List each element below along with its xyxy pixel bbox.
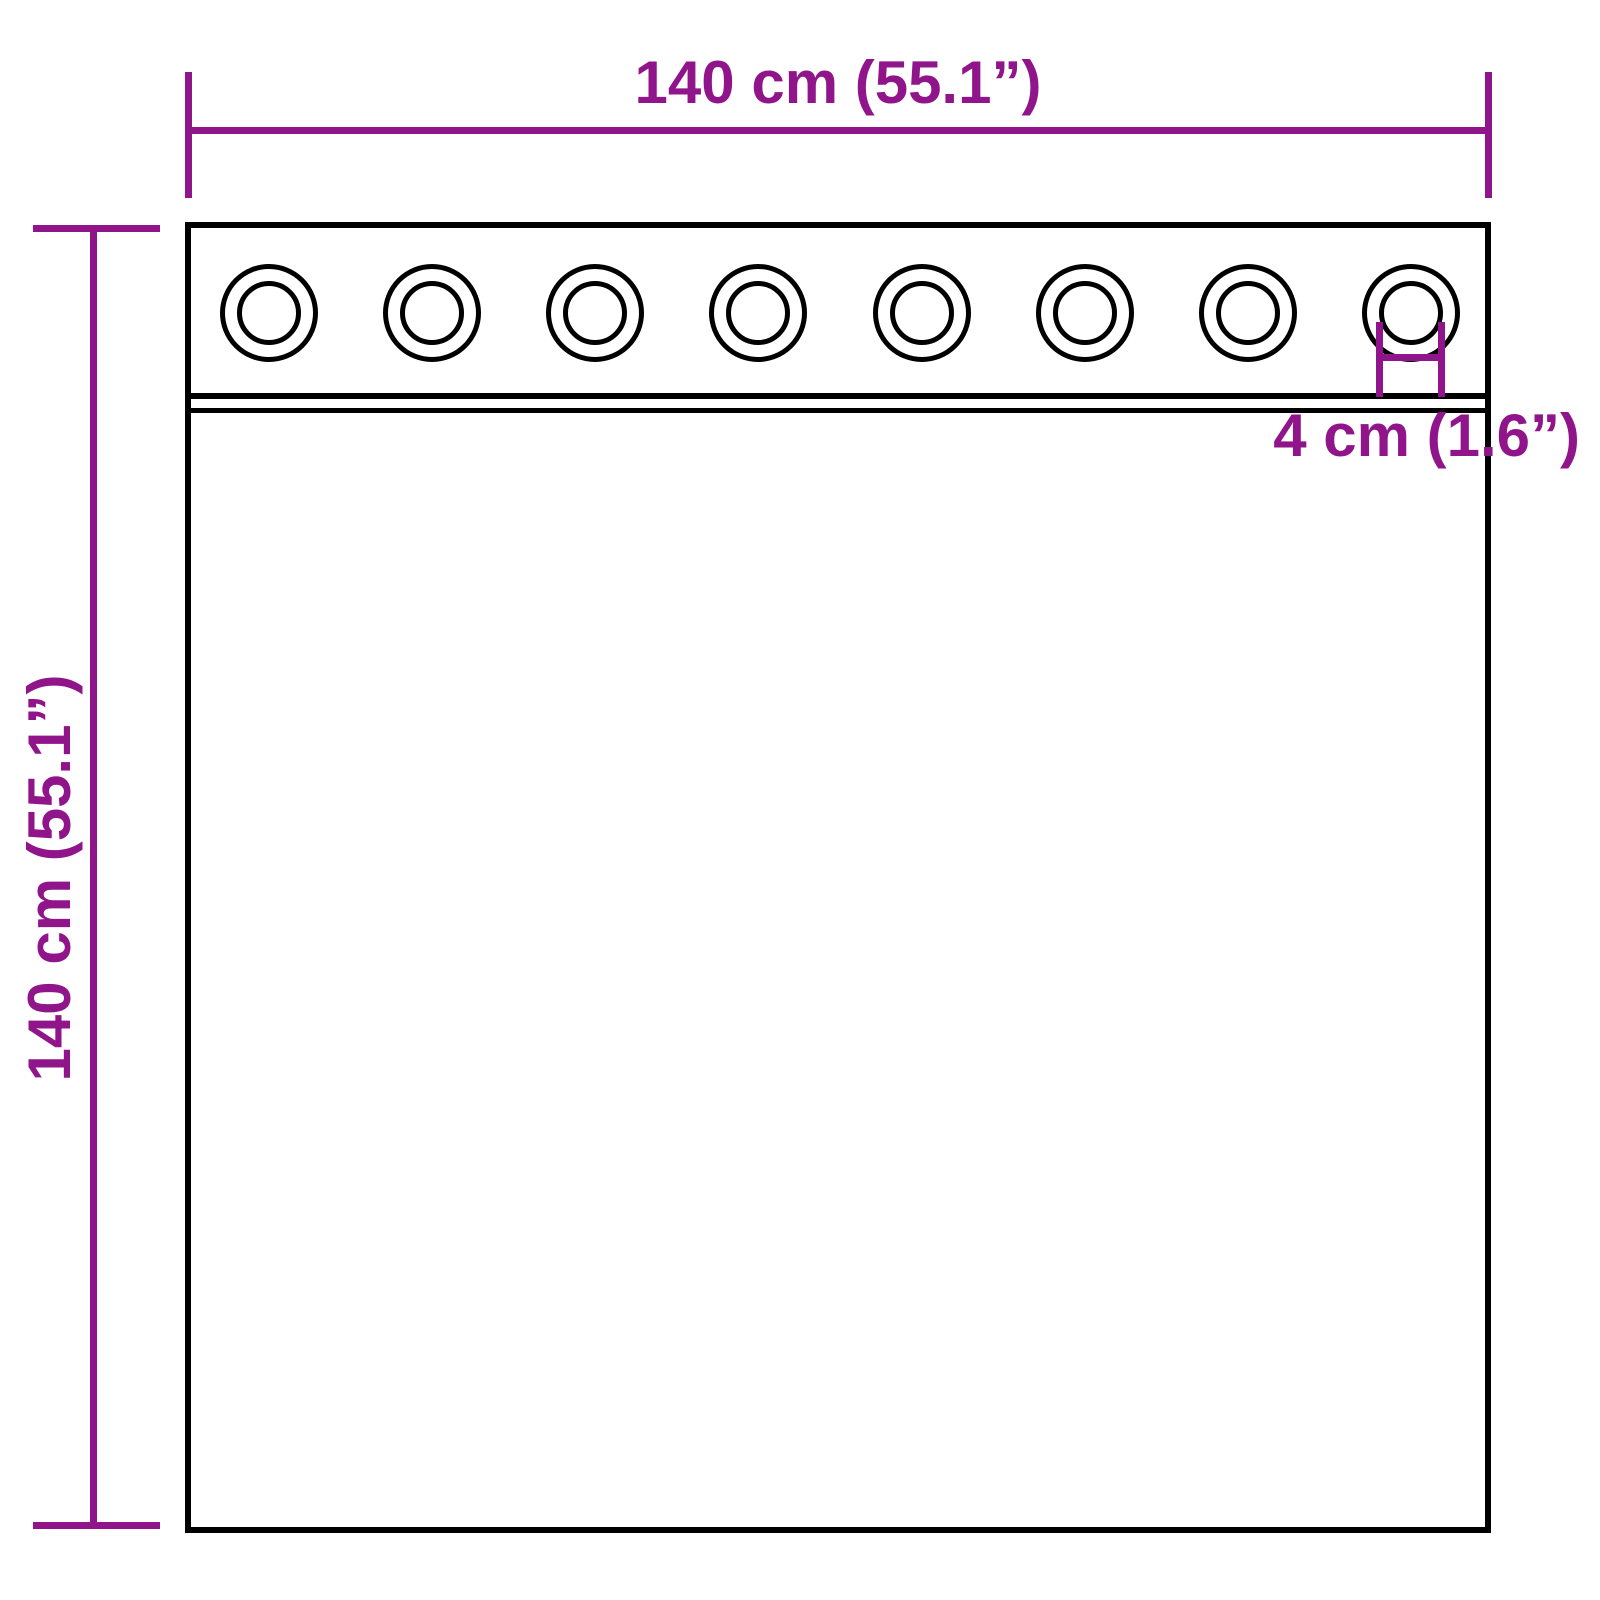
height-dimension-tick-top bbox=[33, 225, 160, 232]
width-dimension-label: 140 cm (55.1”) bbox=[188, 48, 1488, 118]
grommet-inner-ring bbox=[1053, 281, 1117, 345]
grommet-inner-ring bbox=[726, 281, 790, 345]
height-dimension-tick-bottom bbox=[33, 1522, 160, 1529]
grommet-inner-ring bbox=[237, 281, 301, 345]
grommet-inner-ring bbox=[563, 281, 627, 345]
height-dimension-label: 140 cm (55.1”) bbox=[14, 578, 86, 1178]
curtain-dimension-diagram: 140 cm (55.1”) 140 cm (55.1”) 4 cm (1.6”… bbox=[0, 0, 1600, 1600]
header-band-line bbox=[185, 393, 1491, 399]
width-dimension-tick-left bbox=[185, 72, 192, 198]
grommet-inner-ring bbox=[1379, 281, 1443, 345]
width-dimension-line bbox=[188, 127, 1488, 134]
grommet bbox=[1199, 264, 1297, 362]
grommet bbox=[220, 264, 318, 362]
grommet bbox=[709, 264, 807, 362]
grommet-inner-ring bbox=[890, 281, 954, 345]
grommet-dimension-label: 4 cm (1.6”) bbox=[1100, 404, 1580, 468]
width-dimension-tick-right bbox=[1485, 72, 1492, 198]
grommet bbox=[1036, 264, 1134, 362]
grommet bbox=[546, 264, 644, 362]
grommet-inner-ring bbox=[400, 281, 464, 345]
grommet bbox=[873, 264, 971, 362]
grommet-inner-ring bbox=[1216, 281, 1280, 345]
height-dimension-line bbox=[90, 228, 97, 1528]
grommet bbox=[383, 264, 481, 362]
grommet-dimension-connector bbox=[1376, 354, 1445, 361]
